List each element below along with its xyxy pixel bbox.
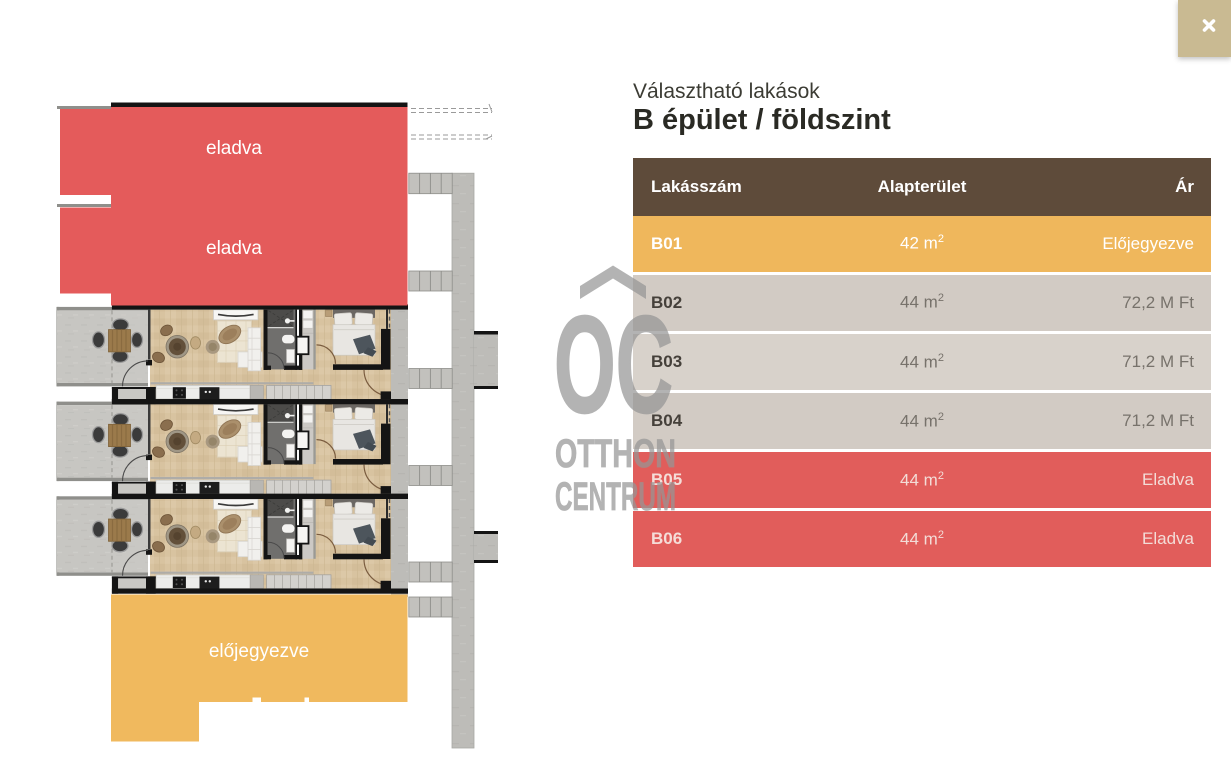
svg-text:OC: OC (554, 288, 673, 442)
svg-text:eladva: eladva (206, 238, 262, 259)
svg-text:eladva: eladva (206, 138, 262, 159)
svg-text:OTTHON: OTTHON (555, 432, 676, 476)
svg-text:előjegyezve: előjegyezve (209, 641, 309, 662)
svg-text:CENTRUM: CENTRUM (555, 475, 676, 519)
